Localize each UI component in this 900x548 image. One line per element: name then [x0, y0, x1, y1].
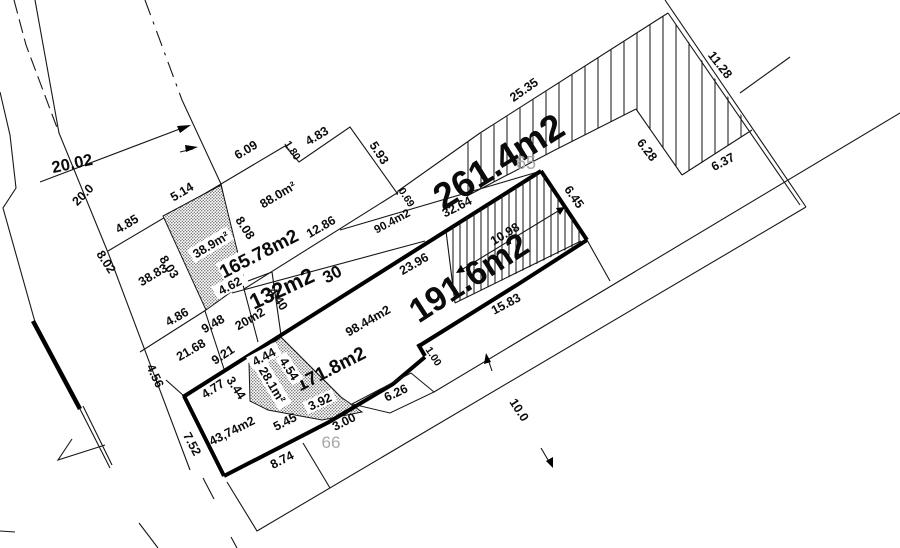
svg-text:65: 65: [516, 153, 536, 173]
svg-text:66: 66: [322, 433, 341, 452]
